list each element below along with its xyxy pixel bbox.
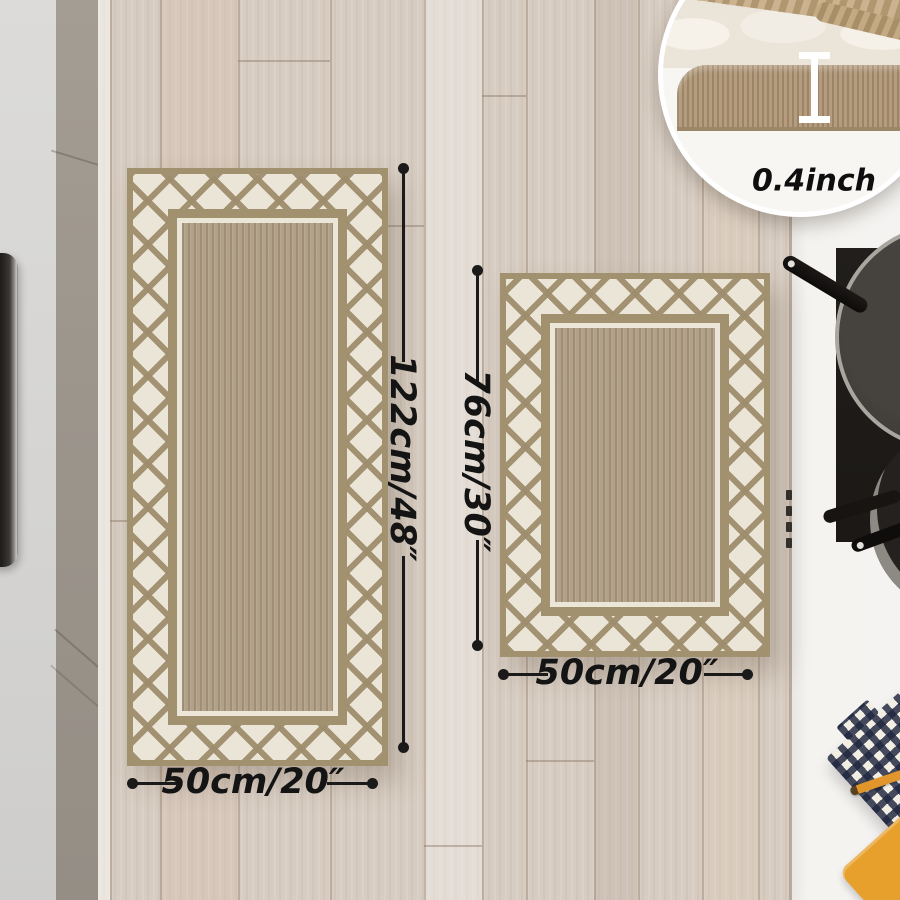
product-photo-scene: 122cm/48″ 76cm/30″ 50cm/20″ 50cm/20″ 0.4…: [0, 0, 900, 900]
rug-side-profile: [677, 65, 900, 131]
plank-line: [110, 0, 112, 900]
hinge-mark: [786, 490, 792, 500]
dimension-line-vertical: [476, 271, 479, 383]
large-rug-width-label: 50cm/20″: [161, 762, 344, 802]
large-rug-center-field: [177, 218, 338, 716]
small-rug-center-field: [550, 323, 720, 607]
plank-line: [424, 0, 426, 900]
dimension-endpoint-dot: [367, 778, 378, 789]
large-runner-rug: [127, 168, 388, 766]
small-rug-width-label: 50cm/20″: [535, 653, 718, 693]
plank-seam: [482, 95, 526, 97]
dimension-endpoint-dot: [742, 669, 753, 680]
plank-seam: [526, 760, 594, 762]
thickness-marker-cap: [799, 52, 830, 59]
hinge-mark: [786, 506, 792, 516]
thickness-label: 0.4inch: [752, 164, 876, 199]
hinge-mark: [786, 538, 792, 548]
dimension-line-vertical: [476, 540, 479, 642]
thickness-marker-bar: [811, 58, 818, 118]
dimension-endpoint-dot: [472, 640, 483, 651]
small-accent-rug: [500, 273, 770, 657]
dimension-line-horizontal: [327, 782, 369, 785]
thickness-marker-cap: [799, 116, 830, 123]
large-rug-height-label: 122cm/48″: [382, 354, 422, 561]
wall-tile-strip: [56, 0, 98, 900]
dimension-line-horizontal: [704, 673, 744, 676]
handle-hole: [786, 259, 796, 269]
small-rug-height-label: 76cm/30″: [456, 369, 496, 552]
hinge-mark: [786, 522, 792, 532]
dimension-line-vertical: [402, 168, 405, 362]
dimension-line-vertical: [402, 556, 405, 746]
handle-hole: [856, 541, 865, 550]
plank-seam: [424, 845, 482, 847]
plank-seam: [238, 60, 330, 62]
dimension-endpoint-dot: [398, 742, 409, 753]
dark-appliance-edge: [0, 253, 18, 567]
floor-plank: [98, 0, 110, 900]
